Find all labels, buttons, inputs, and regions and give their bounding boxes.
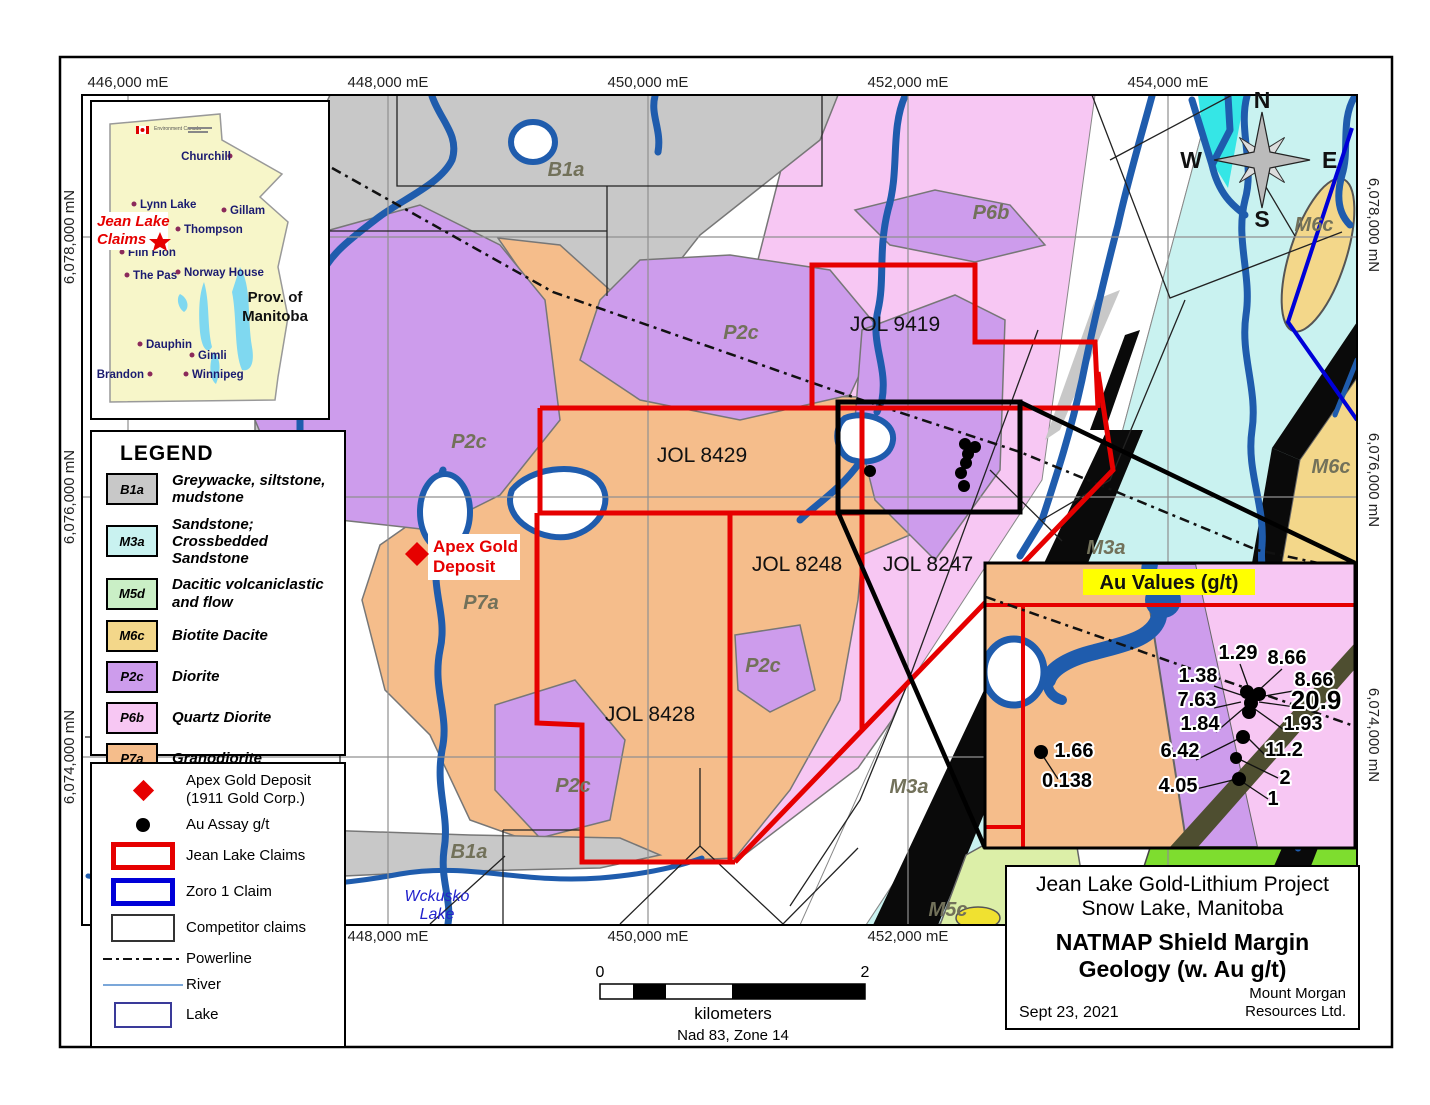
svg-text:N: N bbox=[1254, 87, 1271, 113]
svg-text:JOL 8429: JOL 8429 bbox=[657, 444, 747, 467]
red-rectangle-icon bbox=[111, 842, 175, 870]
svg-text:Gimli: Gimli bbox=[198, 350, 227, 362]
svg-text:P2c: P2c bbox=[723, 322, 759, 344]
svg-text:Lynn Lake: Lynn Lake bbox=[140, 199, 196, 211]
svg-text:JOL 8248: JOL 8248 bbox=[752, 553, 842, 576]
red-diamond-icon bbox=[132, 779, 153, 800]
svg-text:2: 2 bbox=[861, 964, 870, 981]
right-coordinate-labels: 6,078,000 mN 6,076,000 mN 6,074,000 mN bbox=[1365, 178, 1382, 782]
lake-rectangle-icon bbox=[114, 1002, 172, 1028]
svg-text:Deposit: Deposit bbox=[433, 557, 496, 576]
svg-text:448,000 mE: 448,000 mE bbox=[348, 928, 429, 945]
company-name: Mount Morgan Resources Ltd. bbox=[1245, 985, 1346, 1023]
symbol-competitor-claims: Competitor claims bbox=[100, 914, 336, 942]
svg-text:P6b: P6b bbox=[973, 202, 1010, 224]
svg-text:6,078,000 mN: 6,078,000 mN bbox=[61, 190, 78, 284]
svg-text:JOL 8428: JOL 8428 bbox=[605, 703, 695, 726]
symbol-lake: Lake bbox=[100, 1002, 336, 1028]
legend-item-b1a: B1a Greywacke, siltstone, mudstone bbox=[106, 472, 334, 507]
title-block: Jean Lake Gold-Lithium Project Snow Lake… bbox=[1005, 865, 1360, 1030]
map-title-line1: NATMAP Shield Margin bbox=[1007, 929, 1358, 956]
project-title-line1: Jean Lake Gold-Lithium Project bbox=[1007, 873, 1358, 897]
swatch-m6c: M6c bbox=[106, 620, 158, 652]
symbol-au-assay: Au Assay g/t bbox=[100, 816, 336, 834]
svg-text:0: 0 bbox=[596, 964, 605, 981]
svg-text:Winnipeg: Winnipeg bbox=[192, 369, 244, 381]
svg-text:Nad 83, Zone 14: Nad 83, Zone 14 bbox=[677, 1027, 789, 1044]
swatch-m5d: M5d bbox=[106, 578, 158, 610]
svg-text:1.84: 1.84 bbox=[1181, 713, 1221, 735]
svg-text:M3a: M3a bbox=[1087, 537, 1126, 559]
symbol-apex: Apex Gold Deposit (1911 Gold Corp.) bbox=[100, 772, 336, 808]
svg-text:The Pas: The Pas bbox=[133, 270, 177, 282]
au-values-inset: 1.29 8.66 1.38 8.66 7.63 20.9 1.84 1.93 … bbox=[984, 563, 1357, 848]
svg-text:7.63: 7.63 bbox=[1178, 689, 1217, 711]
svg-text:6,074,000 mN: 6,074,000 mN bbox=[61, 710, 78, 804]
legend-item-p6b: P6b Quartz Diorite bbox=[106, 702, 334, 734]
svg-text:1.38: 1.38 bbox=[1179, 665, 1218, 687]
svg-text:6,078,000 mN: 6,078,000 mN bbox=[1365, 178, 1382, 272]
svg-text:JOL 9419: JOL 9419 bbox=[850, 313, 940, 336]
svg-text:452,000 mE: 452,000 mE bbox=[868, 928, 949, 945]
symbol-river: River bbox=[100, 976, 336, 994]
svg-text:P2c: P2c bbox=[451, 431, 487, 453]
symbols-legend-box: Apex Gold Deposit (1911 Gold Corp.) Au A… bbox=[90, 762, 346, 1048]
svg-text:11.2: 11.2 bbox=[1265, 739, 1303, 761]
black-dot-icon bbox=[136, 818, 150, 832]
svg-text:Dauphin: Dauphin bbox=[146, 339, 192, 351]
swatch-b1a: B1a bbox=[106, 473, 158, 505]
svg-text:450,000 mE: 450,000 mE bbox=[608, 74, 689, 91]
svg-text:452,000 mE: 452,000 mE bbox=[868, 74, 949, 91]
svg-text:Jean Lake: Jean Lake bbox=[97, 213, 170, 230]
blue-rectangle-icon bbox=[111, 878, 175, 906]
jean-lake-claims-marker: Jean Lake Claims bbox=[94, 212, 171, 251]
legend-item-p2c: P2c Diorite bbox=[106, 661, 334, 693]
svg-text:2: 2 bbox=[1279, 767, 1290, 789]
symbol-powerline: Powerline bbox=[100, 950, 336, 968]
swatch-p2c: P2c bbox=[106, 661, 158, 693]
svg-text:Lake: Lake bbox=[420, 906, 455, 923]
svg-text:6,076,000 mN: 6,076,000 mN bbox=[61, 450, 78, 544]
svg-text:446,000 mE: 446,000 mE bbox=[88, 74, 169, 91]
svg-text:1.93: 1.93 bbox=[1284, 713, 1323, 735]
svg-text:6,074,000 mN: 6,074,000 mN bbox=[1365, 688, 1382, 782]
black-rectangle-icon bbox=[111, 914, 175, 942]
symbol-jean-lake-claims: Jean Lake Claims bbox=[100, 842, 336, 870]
svg-text:Apex Gold: Apex Gold bbox=[433, 537, 518, 556]
bottom-coordinate-labels: 448,000 mE 450,000 mE 452,000 mE bbox=[348, 928, 949, 945]
svg-text:20.9: 20.9 bbox=[1291, 685, 1342, 715]
svg-text:1.66: 1.66 bbox=[1055, 740, 1094, 762]
map-title-line2: Geology (w. Au g/t) bbox=[1007, 956, 1358, 983]
svg-text:448,000 mE: 448,000 mE bbox=[348, 74, 429, 91]
map-date: Sept 23, 2021 bbox=[1019, 1004, 1119, 1022]
svg-text:Prov. of: Prov. of bbox=[248, 289, 304, 306]
svg-text:P2c: P2c bbox=[555, 775, 591, 797]
svg-text:454,000 mE: 454,000 mE bbox=[1128, 74, 1209, 91]
svg-text:S: S bbox=[1254, 206, 1269, 232]
legend-box: LEGEND B1a Greywacke, siltstone, mudston… bbox=[90, 430, 346, 756]
svg-text:kilometers: kilometers bbox=[694, 1004, 771, 1023]
svg-text:Gillam: Gillam bbox=[230, 205, 265, 217]
svg-text:0.138: 0.138 bbox=[1042, 770, 1092, 792]
legend-item-m5d: M5d Dacitic volcaniclastic and flow bbox=[106, 576, 334, 611]
svg-text:6.42: 6.42 bbox=[1161, 740, 1200, 762]
svg-text:Thompson: Thompson bbox=[184, 224, 243, 236]
svg-text:M3a: M3a bbox=[890, 776, 929, 798]
svg-text:1: 1 bbox=[1267, 788, 1278, 810]
svg-text:B1a: B1a bbox=[548, 159, 585, 181]
legend-item-m3a: M3a Sandstone; Crossbedded Sandstone bbox=[106, 516, 334, 568]
svg-text:Wckusko: Wckusko bbox=[405, 888, 470, 905]
svg-text:Norway House: Norway House bbox=[184, 267, 264, 279]
swatch-p6b: P6b bbox=[106, 702, 158, 734]
svg-text:JOL 8247: JOL 8247 bbox=[883, 553, 973, 576]
svg-text:M6c: M6c bbox=[1295, 214, 1334, 236]
svg-text:M5c: M5c bbox=[929, 899, 968, 921]
swatch-m3a: M3a bbox=[106, 525, 158, 557]
svg-text:1.29: 1.29 bbox=[1219, 642, 1258, 664]
svg-text:Churchill: Churchill bbox=[181, 151, 231, 163]
legend-title: LEGEND bbox=[120, 442, 334, 466]
inset-title: Au Values (g/t) bbox=[1100, 572, 1239, 594]
svg-text:450,000 mE: 450,000 mE bbox=[608, 928, 689, 945]
river-line-icon bbox=[103, 981, 183, 989]
svg-text:8.66: 8.66 bbox=[1268, 647, 1307, 669]
svg-text:Claims: Claims bbox=[97, 231, 146, 248]
svg-text:P2c: P2c bbox=[745, 655, 781, 677]
project-title-line2: Snow Lake, Manitoba bbox=[1007, 897, 1358, 921]
svg-text:6,076,000 mN: 6,076,000 mN bbox=[1365, 433, 1382, 527]
svg-text:W: W bbox=[1180, 147, 1202, 173]
top-coordinate-labels: 446,000 mE 448,000 mE 450,000 mE 452,000… bbox=[88, 74, 1209, 91]
svg-text:Manitoba: Manitoba bbox=[242, 308, 308, 325]
manitoba-inset-map: Environment Canada Churchill Lynn Lake G… bbox=[90, 100, 330, 420]
svg-text:Brandon: Brandon bbox=[97, 369, 144, 381]
legend-item-m6c: M6c Biotite Dacite bbox=[106, 620, 334, 652]
svg-text:4.05: 4.05 bbox=[1159, 775, 1198, 797]
left-coordinate-labels: 6,078,000 mN 6,076,000 mN 6,074,000 mN bbox=[61, 190, 78, 804]
scale-bar: 0 2 kilometers Nad 83, Zone 14 bbox=[596, 964, 870, 1044]
symbol-zoro-claim: Zoro 1 Claim bbox=[100, 878, 336, 906]
dash-dot-line-icon bbox=[103, 954, 183, 964]
svg-text:P7a: P7a bbox=[463, 592, 499, 614]
svg-text:M6c: M6c bbox=[1312, 456, 1351, 478]
svg-text:E: E bbox=[1322, 147, 1337, 173]
svg-text:B1a: B1a bbox=[451, 841, 488, 863]
map-sheet: B1a P6b P2c P2c P7a P2c P2c B1a M3a M6c … bbox=[0, 0, 1430, 1105]
